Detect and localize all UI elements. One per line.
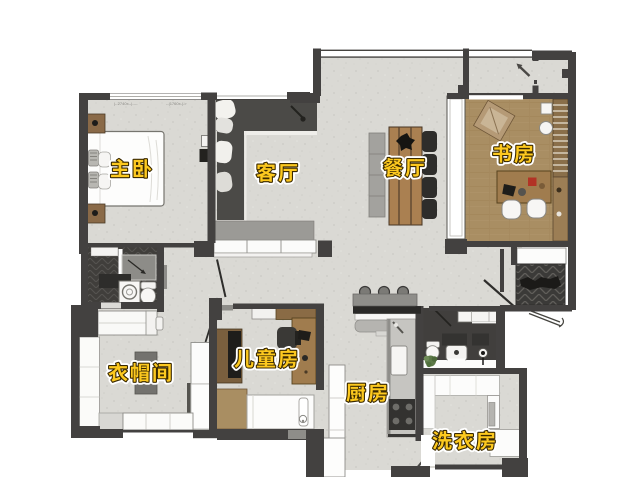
svg-text:--|1760x-|->: --|1760x-|-> <box>166 101 187 106</box>
svg-text:|--2740x--|----: |--2740x--|---- <box>114 101 138 106</box>
